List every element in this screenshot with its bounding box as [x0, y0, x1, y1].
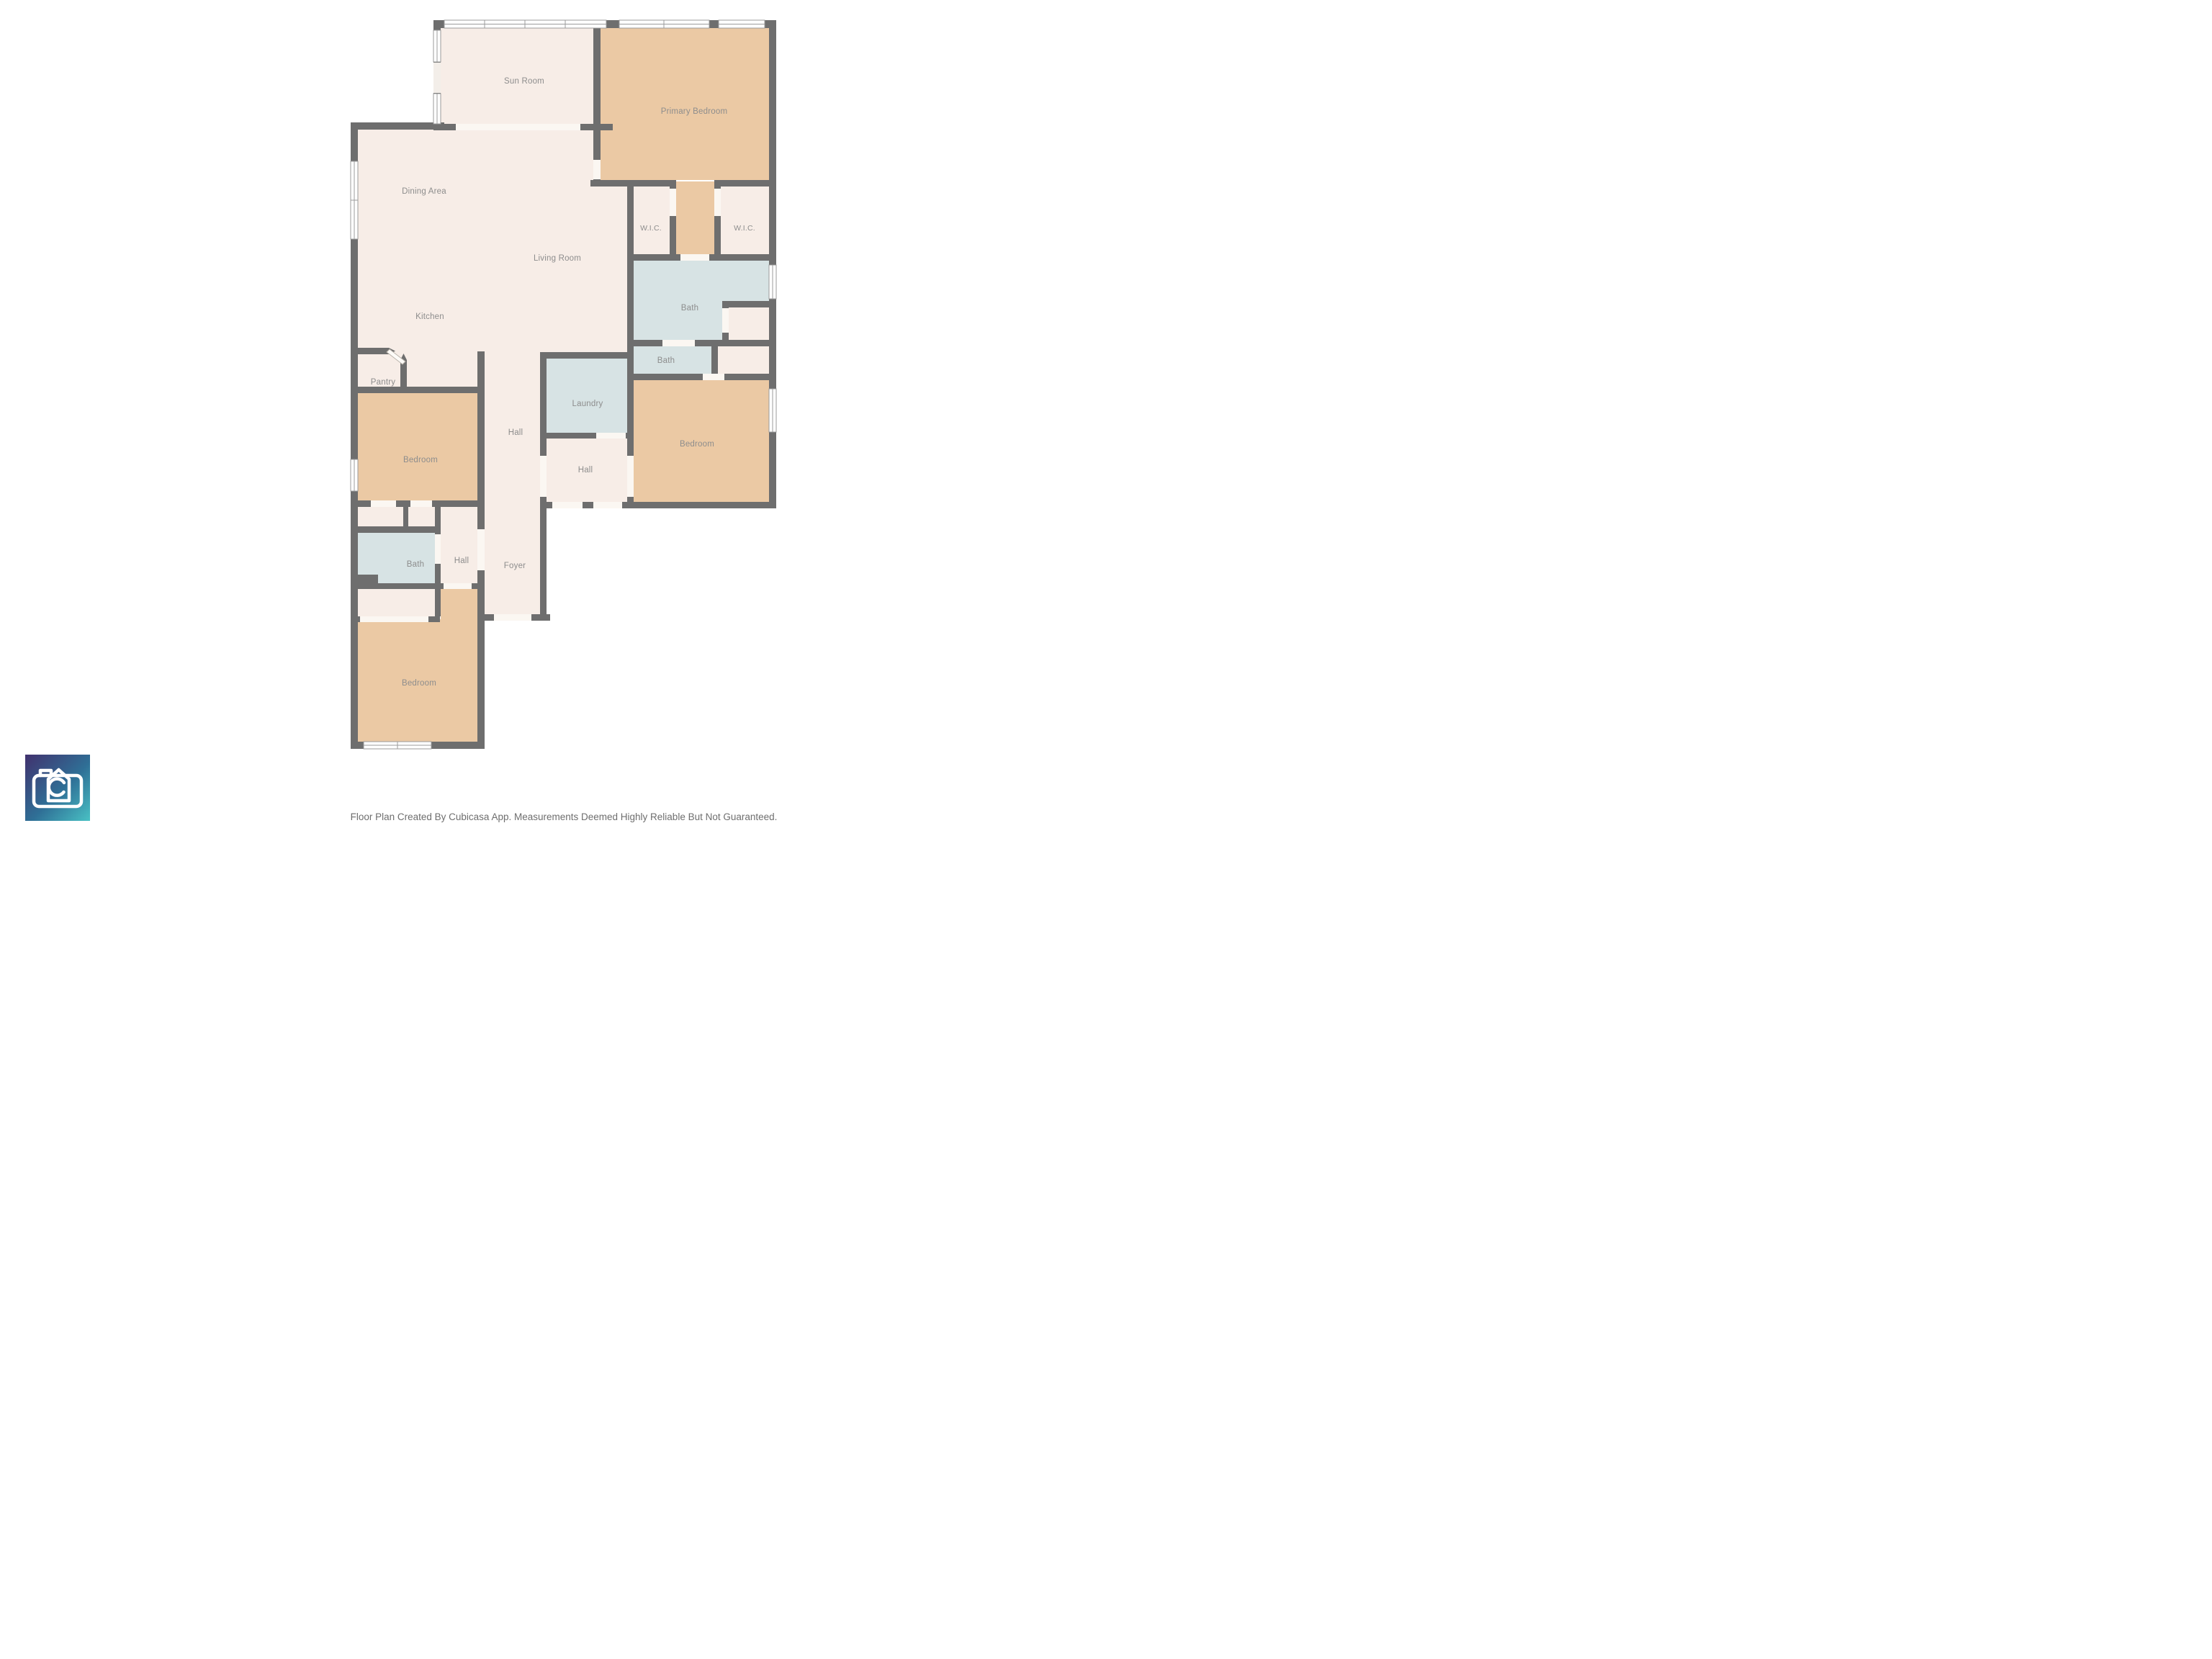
- room-label-bedroom-bottom: Bedroom: [402, 679, 436, 688]
- room-wic-right-floor: [718, 184, 772, 256]
- window-sunroom-left: [433, 30, 441, 124]
- room-closet-right-floor: [718, 343, 772, 377]
- room-label-wic-right: W.I.C.: [734, 224, 755, 233]
- room-bedroom-left-floor: [358, 390, 480, 503]
- room-wic-left-floor: [630, 184, 673, 256]
- wall-bath-left-chunk: [358, 575, 378, 583]
- room-label-hall-right: Hall: [578, 466, 593, 475]
- wall-pantry-stub: [400, 360, 407, 387]
- window-sunroom-top: [444, 20, 606, 28]
- room-label-dining-area: Dining Area: [402, 187, 446, 196]
- window-primary-top-1: [619, 20, 709, 28]
- wall-bedroom-left-top: [351, 387, 484, 393]
- room-primary-bedroom-floor: [601, 28, 769, 180]
- door-hall-small-bedroom: [444, 583, 472, 589]
- window-bedroom-right: [769, 389, 776, 432]
- room-label-pantry: Pantry: [371, 378, 395, 387]
- wall-bedroom-right-top: [627, 374, 776, 380]
- floor-plan-page: { "page": { "background": "#ffffff" }, "…: [0, 0, 1106, 829]
- door-corridor-bath: [680, 254, 709, 261]
- door-laundry: [596, 433, 626, 439]
- room-foyer-floor: [481, 502, 543, 617]
- door-hall-right: [540, 456, 547, 497]
- wall-bath-closet-top: [722, 301, 769, 307]
- wall-bath-hall-right: [711, 343, 718, 377]
- window-bedroom-bottom: [364, 742, 431, 749]
- door-bedroom-left-closet: [371, 500, 396, 507]
- room-label-bath-left: Bath: [407, 560, 424, 569]
- door-bath-left: [435, 534, 441, 564]
- room-closet-left-floor: [358, 503, 403, 529]
- wall-bath-left-top: [351, 526, 440, 533]
- footer-disclaimer: Floor Plan Created By Cubicasa App. Meas…: [0, 811, 1106, 822]
- room-label-bath-hall: Bath: [657, 356, 675, 365]
- window-bath-primary: [769, 265, 776, 299]
- opening-sunroom-living: [456, 124, 580, 130]
- door-primary-bedroom: [593, 160, 601, 179]
- wall-right-exterior: [769, 20, 776, 508]
- room-laundry-floor: [543, 355, 631, 436]
- room-primary-corridor-floor: [676, 181, 714, 256]
- room-label-living-room: Living Room: [534, 254, 581, 263]
- room-label-foyer: Foyer: [504, 562, 526, 570]
- rooms-group: [358, 28, 772, 745]
- door-closet-bedroom: [703, 374, 724, 380]
- door-bath-bath: [662, 340, 695, 346]
- room-label-primary-bedroom: Primary Bedroom: [661, 107, 727, 116]
- door-hall-right-exterior-1: [552, 502, 583, 508]
- wall-closet-divider: [403, 506, 408, 526]
- wall-right-column-left: [627, 180, 634, 502]
- window-bedroom-left: [351, 459, 358, 491]
- door-front-entry: [494, 614, 531, 621]
- room-label-bath-primary: Bath: [681, 304, 698, 313]
- window-primary-top-2: [719, 20, 765, 28]
- door-bedroom-left-vestibule: [410, 500, 432, 507]
- wall-laundry-top: [540, 352, 634, 359]
- room-label-sun-room: Sun Room: [504, 77, 544, 86]
- room-closet-strip-floor: [358, 586, 438, 619]
- room-vestibule-floor: [408, 503, 438, 529]
- room-bath-closet-floor: [726, 305, 769, 343]
- room-label-hall-center: Hall: [508, 428, 523, 437]
- door-wic-right: [714, 189, 721, 216]
- wall-bath-divider: [627, 340, 776, 346]
- wall-living-top: [351, 122, 444, 130]
- door-wic-left: [670, 189, 676, 216]
- room-label-wic-left: W.I.C.: [640, 224, 662, 233]
- door-bath-closet: [722, 308, 729, 333]
- room-label-hall-small: Hall: [454, 557, 469, 565]
- door-bedroom-right: [627, 456, 634, 497]
- room-label-bedroom-left: Bedroom: [403, 456, 438, 464]
- room-sun-room-floor: [441, 28, 593, 124]
- room-hall-small-floor: [438, 503, 480, 586]
- room-label-laundry: Laundry: [572, 400, 603, 408]
- door-hall-right-exterior-2: [593, 502, 622, 508]
- c-mark: [49, 779, 64, 796]
- window-dining: [351, 161, 358, 239]
- room-label-bedroom-right: Bedroom: [680, 440, 714, 449]
- door-strip-bedroom: [360, 616, 428, 622]
- room-label-kitchen: Kitchen: [415, 313, 444, 321]
- door-hall-small-foyer: [477, 529, 485, 570]
- wall-primary-bottom-right: [714, 180, 776, 186]
- floor-plan: Sun Room Primary Bedroom W.I.C. W.I.C. B…: [0, 0, 1106, 829]
